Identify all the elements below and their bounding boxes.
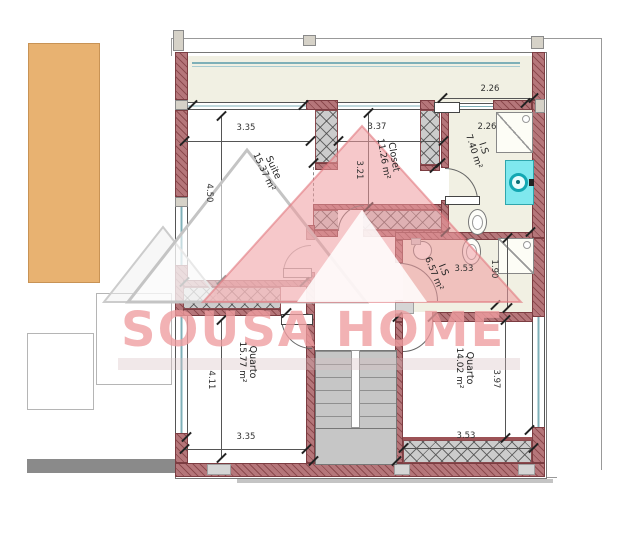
dim-suite-height: 4.50	[204, 184, 214, 203]
dim-closet-width: 3.37	[368, 122, 387, 132]
dimline-suite-height	[221, 116, 222, 280]
dimline-bedleft-width	[184, 449, 306, 450]
dim-bedright-width: 3.53	[457, 431, 476, 441]
bedroom-right-wardrobe	[403, 440, 532, 463]
roof-post-middle	[303, 35, 316, 46]
roof-post-right	[531, 36, 544, 49]
roof-post-left	[173, 30, 184, 51]
room-label-bedroom-right: Quarto 14.02 m²	[453, 347, 475, 388]
dimline-bathmid-depth	[507, 238, 508, 308]
wall-suite-east-upper	[306, 225, 315, 240]
dim-bathmid-depth: 1.90	[489, 260, 499, 279]
staircase-landing	[315, 428, 397, 465]
washbasin-shelf-mid	[411, 238, 421, 245]
window-bedroom-right	[532, 317, 545, 427]
dim-bedright-height: 3.97	[491, 370, 501, 389]
wall-top-seg-2	[420, 100, 435, 110]
watermark-text: SOUSA HOME	[121, 302, 505, 358]
toilet-bowl-top	[472, 215, 483, 230]
balcony-door-leaf	[434, 102, 460, 113]
sill-bottom-3	[518, 464, 535, 475]
shower-icon-top	[496, 112, 533, 153]
wall-left-upper	[175, 110, 188, 197]
property-line-left-stub	[171, 38, 172, 56]
neighbor-outline-b	[27, 333, 94, 410]
balcony-railing-glass-2	[192, 66, 520, 67]
wall-right-balcony	[532, 52, 545, 100]
dim-bath-mid-width: 3.53	[455, 264, 474, 274]
staircase-stringer	[351, 350, 360, 428]
dim-closet-height: 3.21	[354, 161, 364, 180]
suite-closet-divider	[313, 167, 315, 207]
closet-wardrobe	[313, 210, 443, 230]
floor-plan: 3.35 3.37 2.26 2.26 3.53 3.35 3.53 4.50 …	[0, 0, 627, 535]
wall-top-seg-1	[306, 100, 338, 110]
window-hall-top	[458, 103, 493, 110]
closet-wardrobe-bottom-left	[313, 230, 338, 237]
room-label-bedroom-left: Quarto 15.77 m²	[236, 341, 258, 382]
road-strip	[27, 459, 187, 473]
wall-left-pillar-2	[175, 197, 188, 207]
dim-bath-top-outer: 2.26	[481, 84, 500, 94]
sink-tap-icon	[529, 179, 534, 186]
wall-right-pillar	[535, 99, 545, 113]
wardrobe-column-left-cap	[315, 163, 338, 170]
sill-bottom-1	[207, 464, 231, 475]
dimline-suite-width	[184, 141, 310, 142]
wall-bath-mid-west-a	[395, 240, 403, 263]
sill-bottom-2	[394, 464, 410, 475]
window-suite-top	[188, 102, 306, 110]
wall-left-balcony	[175, 52, 188, 100]
window-suite-left	[175, 207, 188, 265]
building-shadow-bottom-2	[237, 479, 553, 483]
dim-bedleft-height: 4.11	[206, 371, 216, 390]
property-line-right	[601, 38, 602, 470]
dim-suite-width: 3.35	[237, 123, 256, 133]
sink-drain-icon	[516, 180, 520, 184]
dimline-bath-top	[442, 98, 533, 99]
wall-suite-east-lower-stair-west	[306, 272, 315, 463]
balcony-railing-glass	[192, 62, 520, 64]
neighbor-building	[28, 43, 100, 283]
dimline-bedright-width	[403, 448, 533, 449]
toilet-bowl-mid	[466, 244, 477, 260]
wardrobe-column-left	[315, 110, 338, 163]
suite-wardrobe-top-edge	[183, 280, 311, 287]
dim-bedleft-width: 3.35	[237, 432, 256, 442]
wardrobe-column-right	[420, 110, 440, 165]
bathroom-top-door-leaf	[445, 196, 480, 205]
window-closet-top	[338, 102, 420, 110]
